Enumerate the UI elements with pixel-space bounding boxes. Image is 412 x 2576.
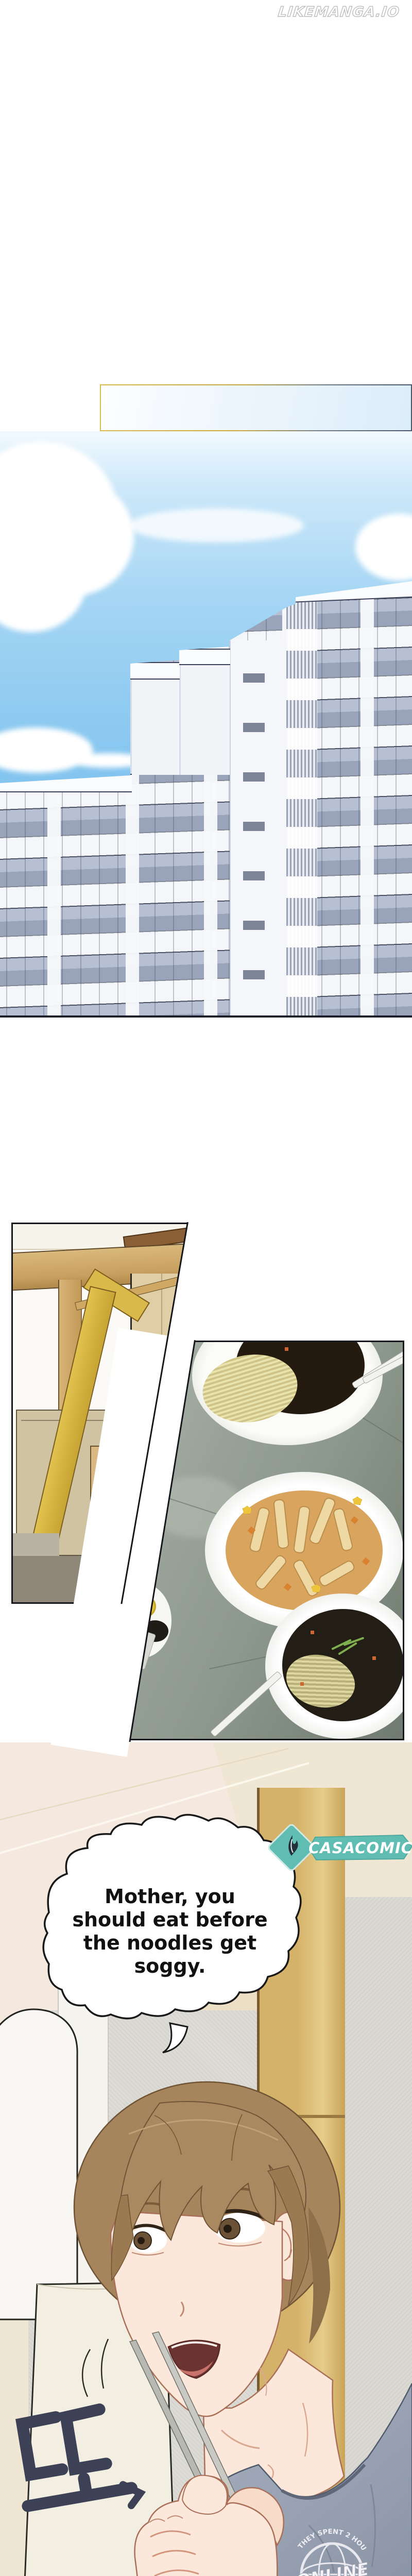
cloud bbox=[129, 509, 304, 543]
parapet bbox=[0, 774, 132, 792]
speech-line-4: soggy. bbox=[134, 1955, 206, 1977]
rooftop-box bbox=[130, 664, 181, 775]
site-watermark: LIKEMANGA.IO bbox=[277, 4, 412, 20]
jjajang-carrot bbox=[372, 1656, 376, 1660]
building-facade-balconies bbox=[0, 575, 412, 1018]
parapet bbox=[179, 649, 230, 665]
apartment-building bbox=[0, 575, 412, 1018]
elevator-shaft-stripes bbox=[286, 597, 317, 1018]
casacomic-logo: CASACOMIC bbox=[267, 1823, 412, 1871]
speech-line-2: should eat before bbox=[72, 1908, 267, 1931]
sauce-garnish bbox=[285, 1347, 288, 1351]
speech-bubble: Mother, you should eat before the noodle… bbox=[43, 1815, 301, 2053]
panel-sky-building bbox=[0, 431, 412, 1018]
building-core-tower bbox=[230, 640, 287, 1018]
chopstick bbox=[210, 1671, 283, 1737]
cloud bbox=[355, 514, 412, 581]
rooftop-box bbox=[179, 650, 231, 775]
eye-left-pupil bbox=[138, 2237, 145, 2244]
logo-text: CASACOMIC bbox=[308, 1839, 412, 1857]
core-windows bbox=[243, 651, 265, 1011]
jjajang-carrot bbox=[300, 1682, 304, 1686]
speech-line-1: Mother, you bbox=[105, 1885, 235, 1908]
panel-sky-strip bbox=[100, 384, 412, 431]
speech-line-3: the noodles get bbox=[83, 1931, 256, 1954]
living-room-foreground: 또 bbox=[0, 1742, 412, 2576]
webtoon-page: LIKEMANGA.IO bbox=[0, 0, 412, 2576]
thumb bbox=[182, 2476, 227, 2514]
speech-bubble-tail bbox=[163, 2023, 187, 2053]
cloud bbox=[0, 442, 118, 591]
jjajang-carrot bbox=[311, 1631, 314, 1634]
ceiling-corner-line bbox=[0, 1749, 288, 1820]
cloud bbox=[0, 727, 93, 773]
panel-living-room: 또 bbox=[0, 1742, 412, 2576]
parapet bbox=[130, 662, 180, 680]
eye-right-pupil bbox=[224, 2225, 232, 2233]
couch-back bbox=[0, 2009, 77, 2319]
